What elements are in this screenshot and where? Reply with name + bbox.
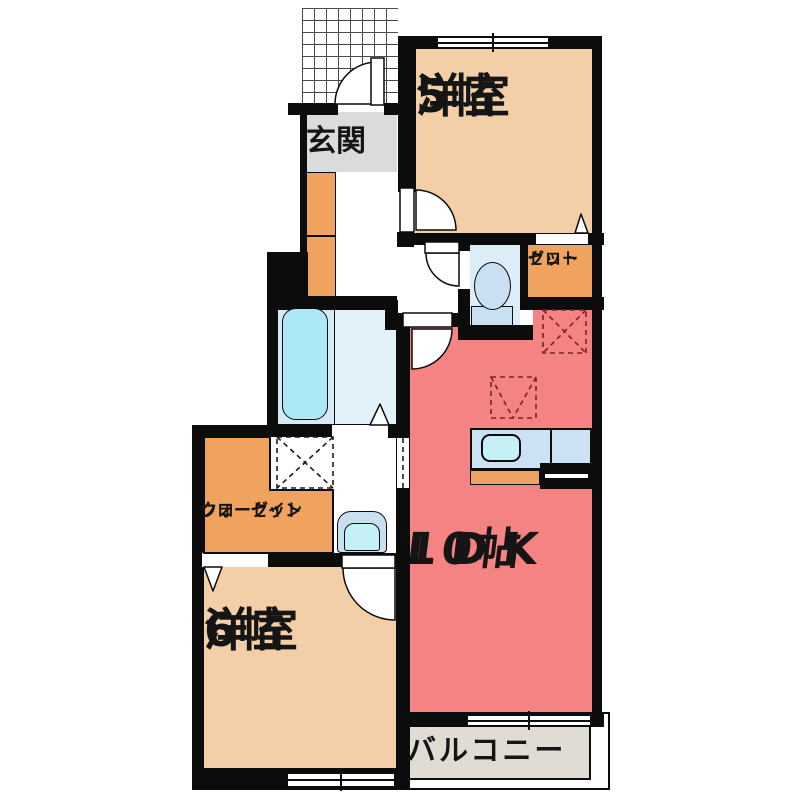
wall-bedroom5-west bbox=[398, 36, 416, 192]
wall-ldk-door bbox=[396, 313, 462, 327]
wall-bath-bottom bbox=[192, 425, 332, 437]
wall-west-outer bbox=[192, 425, 204, 790]
washroom-ldk-opening bbox=[397, 438, 409, 488]
wall-bath-bottom-east bbox=[388, 425, 408, 438]
wall-bath-top bbox=[267, 296, 397, 310]
floorplan-canvas: 玄関 洋室 5帖 クロー ゼット LDK 10帖 ウォークイン クローゼット 洋… bbox=[0, 0, 800, 800]
wall-east-outer bbox=[592, 36, 602, 727]
wic-door-gap bbox=[202, 553, 268, 567]
kitchen-stove bbox=[540, 463, 592, 489]
ldk-floor-west bbox=[410, 327, 462, 717]
wall-stub-hall bbox=[397, 232, 414, 247]
bedroom6-label-line2: 6帖 bbox=[204, 602, 286, 660]
wall-entrance-left-stub bbox=[288, 103, 338, 115]
window-center-tick bbox=[492, 33, 494, 52]
ldk-label-line2: 10帖 bbox=[404, 524, 528, 577]
ldk-floor-east bbox=[533, 310, 592, 717]
kitchen-stove-slit bbox=[545, 474, 588, 478]
walkin-closet-label-line2: クローゼット bbox=[200, 500, 302, 523]
closet-label-line2: ゼット bbox=[528, 248, 579, 270]
bedroom5-window bbox=[438, 36, 548, 49]
bedroom5-door-leaf bbox=[400, 188, 414, 232]
balcony-label-text: バルコニー bbox=[407, 722, 566, 778]
wall-toilet-bottom bbox=[458, 325, 533, 340]
wall-closet-west bbox=[520, 245, 528, 297]
walkin-closet-floor bbox=[204, 437, 333, 553]
balcony-label: バルコニー bbox=[407, 722, 591, 780]
toilet-door-swing bbox=[426, 253, 459, 286]
washbasin-bowl bbox=[344, 523, 380, 551]
closet-folding-door-gap bbox=[536, 234, 588, 244]
bedroom6-window bbox=[288, 772, 394, 788]
wall-west-block bbox=[267, 252, 308, 300]
wall-entrance-hinge bbox=[384, 103, 398, 115]
bathtub-fixture bbox=[282, 308, 328, 420]
kitchen-sink bbox=[481, 434, 521, 462]
entrance-label-text: 玄関 bbox=[306, 124, 366, 160]
entrance-porch-hatch bbox=[302, 8, 398, 104]
washer-space-mark bbox=[277, 437, 333, 488]
toilet-door-gap bbox=[458, 251, 470, 289]
wall-closet-bottom bbox=[520, 297, 604, 310]
bedroom6-floor bbox=[204, 567, 396, 768]
toilet-bowl bbox=[474, 262, 511, 310]
shoe-cabinet-shelf-line bbox=[304, 235, 335, 237]
window-center-tick bbox=[340, 769, 342, 791]
wall-bath-west bbox=[267, 300, 278, 437]
bedroom5-label-line2: 5帖 bbox=[416, 68, 498, 126]
kitchen-cabinet-front bbox=[470, 470, 540, 485]
